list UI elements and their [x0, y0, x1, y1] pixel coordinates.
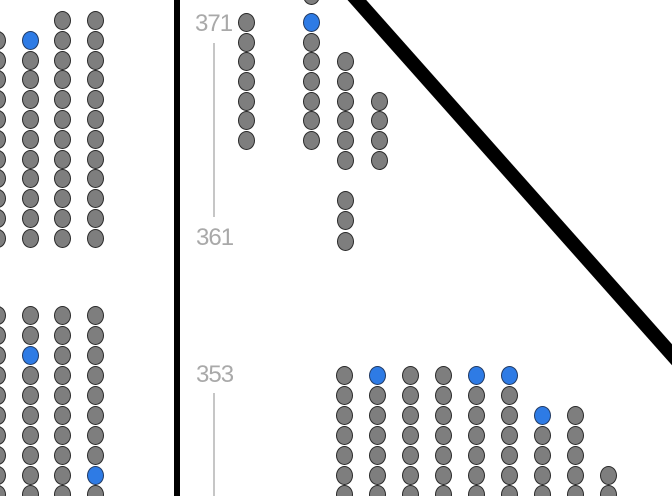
seat-unavailable — [369, 386, 386, 405]
seat-unavailable — [336, 466, 353, 485]
seat-unavailable — [22, 386, 39, 405]
seat-unavailable — [87, 130, 104, 149]
section-rail-segment — [213, 393, 215, 496]
seat-unavailable — [54, 110, 71, 129]
seat-unavailable — [0, 90, 6, 109]
seat-unavailable — [337, 52, 354, 71]
section-label-371: 371 — [195, 10, 232, 38]
seat-unavailable — [54, 11, 71, 30]
seat-unavailable — [87, 426, 104, 445]
seat-unavailable — [303, 33, 320, 52]
seat-unavailable — [0, 346, 6, 365]
seat-unavailable — [501, 466, 518, 485]
seat-unavailable — [468, 406, 485, 425]
seat-unavailable — [87, 229, 104, 248]
seat-unavailable — [435, 366, 452, 385]
seat-unavailable — [54, 150, 71, 169]
seat-unavailable — [54, 446, 71, 465]
seat-unavailable — [435, 446, 452, 465]
seat-unavailable — [238, 13, 255, 32]
section-boundary-diagonal-line — [348, 0, 672, 375]
seat-unavailable — [303, 92, 320, 111]
seat-unavailable — [54, 31, 71, 50]
seat-unavailable — [0, 130, 6, 149]
seat-unavailable — [0, 446, 6, 465]
seat-unavailable — [402, 485, 419, 496]
seat-unavailable — [369, 426, 386, 445]
seat-unavailable — [54, 386, 71, 405]
seat-unavailable — [87, 366, 104, 385]
seat-unavailable — [501, 426, 518, 445]
seat-unavailable — [371, 151, 388, 170]
seat-unavailable — [22, 485, 39, 496]
seat-unavailable — [87, 51, 104, 70]
seat-unavailable — [337, 72, 354, 91]
seat-unavailable — [87, 306, 104, 325]
seat-unavailable — [0, 229, 6, 248]
seat-unavailable — [567, 426, 584, 445]
seat-unavailable — [303, 111, 320, 130]
seat-unavailable — [402, 406, 419, 425]
seat-unavailable — [336, 426, 353, 445]
seat-unavailable — [54, 466, 71, 485]
seat-available[interactable] — [468, 366, 485, 385]
seat-unavailable — [468, 446, 485, 465]
seat-unavailable — [468, 426, 485, 445]
seat-unavailable — [87, 189, 104, 208]
seat-unavailable — [468, 466, 485, 485]
seat-map: 371 361 353 — [0, 0, 672, 496]
seat-unavailable — [22, 306, 39, 325]
seat-unavailable — [54, 326, 71, 345]
seat-unavailable — [468, 386, 485, 405]
seat-unavailable — [22, 209, 39, 228]
seat-unavailable — [87, 150, 104, 169]
seat-unavailable — [54, 366, 71, 385]
seat-unavailable — [501, 406, 518, 425]
seat-unavailable — [87, 70, 104, 89]
seat-unavailable — [54, 406, 71, 425]
seat-unavailable — [87, 31, 104, 50]
seat-unavailable — [54, 426, 71, 445]
seat-unavailable — [54, 229, 71, 248]
section-label-353: 353 — [196, 361, 233, 389]
seat-unavailable — [435, 466, 452, 485]
seat-unavailable — [402, 446, 419, 465]
seat-unavailable — [22, 366, 39, 385]
seat-available[interactable] — [534, 406, 551, 425]
seat-unavailable — [22, 150, 39, 169]
seat-unavailable — [369, 466, 386, 485]
seat-unavailable — [238, 92, 255, 111]
seat-available[interactable] — [22, 346, 39, 365]
section-boundary-vertical-line — [174, 0, 180, 496]
seat-unavailable — [468, 485, 485, 496]
seat-unavailable — [369, 485, 386, 496]
seat-unavailable — [534, 446, 551, 465]
seat-unavailable — [0, 326, 6, 345]
seat-unavailable — [22, 406, 39, 425]
seat-unavailable — [435, 386, 452, 405]
seat-available[interactable] — [369, 366, 386, 385]
seat-unavailable — [238, 33, 255, 52]
seat-unavailable — [303, 52, 320, 71]
seat-unavailable — [336, 406, 353, 425]
seat-unavailable — [369, 446, 386, 465]
seat-unavailable — [337, 92, 354, 111]
seat-unavailable — [337, 151, 354, 170]
seat-unavailable — [87, 169, 104, 188]
seat-unavailable — [87, 386, 104, 405]
seat-unavailable — [22, 110, 39, 129]
seat-unavailable — [0, 386, 6, 405]
seat-unavailable — [54, 90, 71, 109]
seat-unavailable — [402, 386, 419, 405]
seat-unavailable — [369, 406, 386, 425]
seat-unavailable — [87, 485, 104, 496]
seat-unavailable — [534, 426, 551, 445]
seat-unavailable — [22, 51, 39, 70]
section-rail-segment — [213, 43, 215, 217]
seat-unavailable — [600, 466, 617, 485]
seat-unavailable — [501, 386, 518, 405]
seat-unavailable — [22, 90, 39, 109]
seat-unavailable — [0, 426, 6, 445]
seat-unavailable — [22, 326, 39, 345]
seat-unavailable — [567, 466, 584, 485]
seat-unavailable — [87, 90, 104, 109]
seat-unavailable — [54, 70, 71, 89]
seat-unavailable — [87, 446, 104, 465]
seat-available[interactable] — [501, 366, 518, 385]
seat-unavailable — [371, 131, 388, 150]
seat-unavailable — [87, 326, 104, 345]
seat-unavailable — [22, 130, 39, 149]
seat-unavailable — [303, 0, 320, 5]
seat-unavailable — [238, 52, 255, 71]
seat-unavailable — [238, 131, 255, 150]
seat-unavailable — [238, 72, 255, 91]
seat-available[interactable] — [22, 31, 39, 50]
seat-unavailable — [0, 406, 6, 425]
seat-unavailable — [22, 70, 39, 89]
seat-unavailable — [0, 306, 6, 325]
seat-available[interactable] — [303, 13, 320, 32]
seat-unavailable — [371, 92, 388, 111]
seat-unavailable — [54, 485, 71, 496]
seat-unavailable — [0, 169, 6, 188]
seat-unavailable — [371, 111, 388, 130]
seat-unavailable — [567, 406, 584, 425]
seat-unavailable — [22, 169, 39, 188]
seat-unavailable — [336, 446, 353, 465]
seat-unavailable — [22, 189, 39, 208]
seat-unavailable — [87, 346, 104, 365]
seat-unavailable — [534, 485, 551, 496]
seat-unavailable — [238, 111, 255, 130]
seat-unavailable — [600, 485, 617, 496]
seat-unavailable — [0, 209, 6, 228]
seat-unavailable — [0, 51, 6, 70]
seat-unavailable — [336, 366, 353, 385]
seat-unavailable — [435, 406, 452, 425]
seat-unavailable — [402, 466, 419, 485]
seat-unavailable — [54, 169, 71, 188]
seat-unavailable — [501, 485, 518, 496]
seat-unavailable — [435, 426, 452, 445]
seat-unavailable — [54, 209, 71, 228]
seat-unavailable — [22, 426, 39, 445]
seat-unavailable — [0, 189, 6, 208]
seat-unavailable — [337, 232, 354, 251]
seat-unavailable — [303, 72, 320, 91]
seat-unavailable — [534, 466, 551, 485]
seat-unavailable — [402, 366, 419, 385]
seat-unavailable — [0, 31, 6, 50]
seat-unavailable — [0, 485, 6, 496]
seat-unavailable — [0, 466, 6, 485]
seat-unavailable — [303, 131, 320, 150]
seat-unavailable — [87, 11, 104, 30]
seat-unavailable — [87, 110, 104, 129]
seat-unavailable — [54, 51, 71, 70]
seat-unavailable — [87, 209, 104, 228]
seat-unavailable — [337, 211, 354, 230]
seat-unavailable — [54, 130, 71, 149]
seat-unavailable — [54, 306, 71, 325]
seat-unavailable — [567, 485, 584, 496]
seat-unavailable — [567, 446, 584, 465]
seat-unavailable — [337, 111, 354, 130]
seat-unavailable — [336, 386, 353, 405]
seat-unavailable — [435, 485, 452, 496]
seat-unavailable — [22, 466, 39, 485]
seat-unavailable — [501, 446, 518, 465]
seat-unavailable — [54, 189, 71, 208]
seat-available[interactable] — [87, 466, 104, 485]
seat-unavailable — [0, 70, 6, 89]
seat-unavailable — [87, 406, 104, 425]
seat-unavailable — [0, 110, 6, 129]
seat-unavailable — [337, 191, 354, 210]
seat-unavailable — [336, 485, 353, 496]
seat-unavailable — [337, 131, 354, 150]
seat-unavailable — [22, 446, 39, 465]
section-label-361: 361 — [196, 224, 233, 252]
seat-unavailable — [0, 150, 6, 169]
seat-unavailable — [0, 366, 6, 385]
seat-unavailable — [22, 229, 39, 248]
seat-unavailable — [402, 426, 419, 445]
seat-unavailable — [54, 346, 71, 365]
